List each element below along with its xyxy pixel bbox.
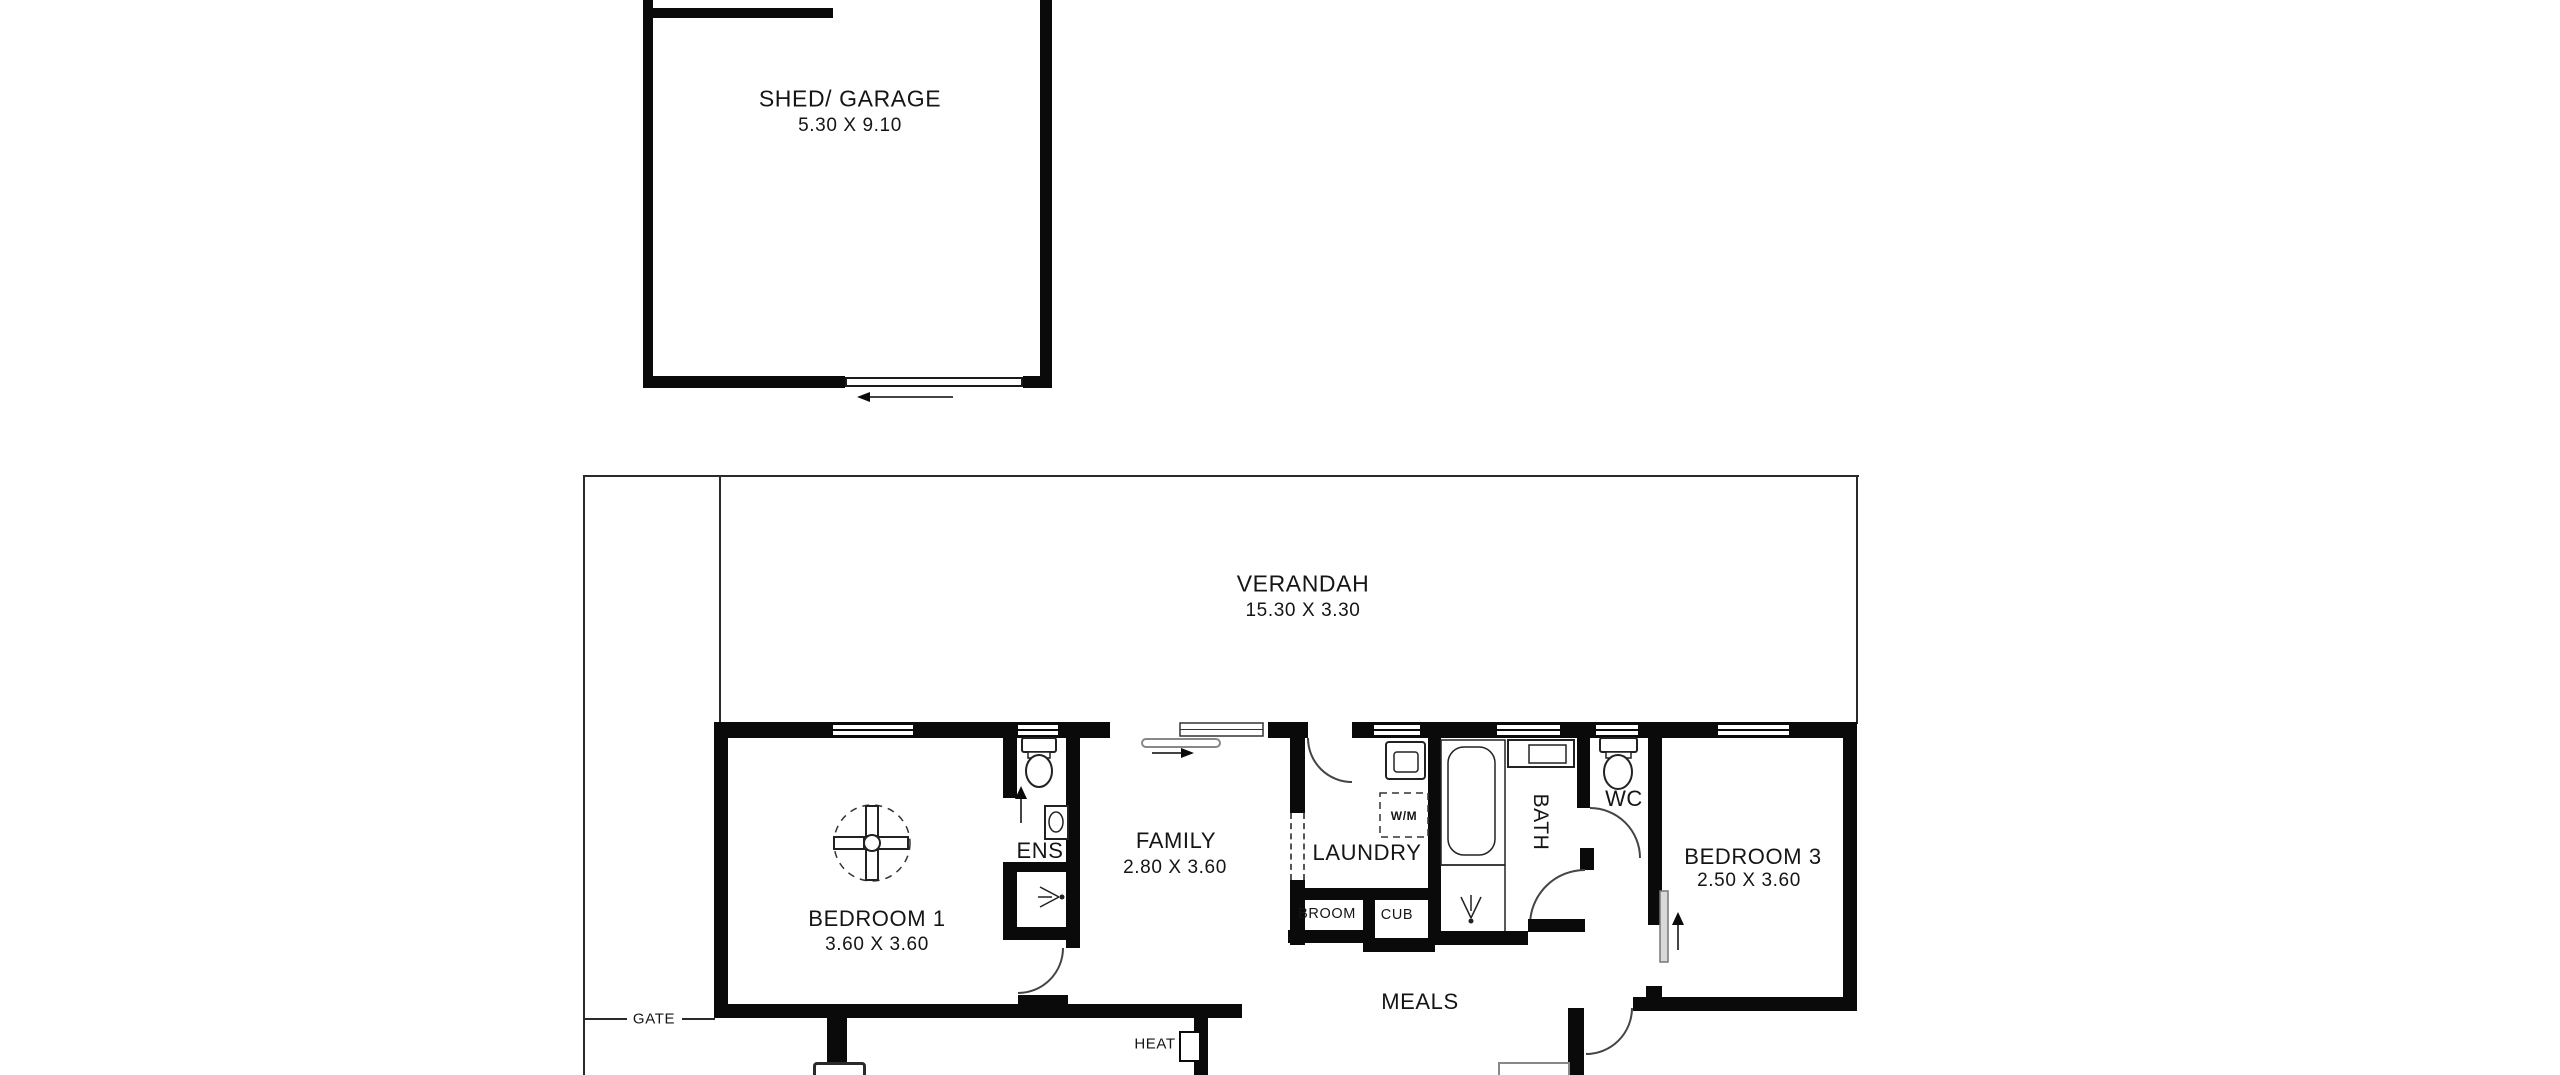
- door-arc-laundry: [1308, 738, 1352, 782]
- door-arc-wc: [1590, 808, 1640, 858]
- shower-ens-icon: [1038, 887, 1059, 907]
- sliding-door-panel-family: [1142, 739, 1220, 747]
- bedroom1-label: BEDROOM 1: [808, 906, 945, 932]
- meals-label: MEALS: [1381, 989, 1459, 1015]
- family-dimensions: 2.80 X 3.60: [1123, 857, 1227, 879]
- sliding-door-panel-bedroom3: [1660, 891, 1668, 962]
- toilet-bowl-wc-icon: [1604, 755, 1632, 789]
- door-leaf-bedroom1: [1018, 995, 1068, 1005]
- fixtures-layer: [0, 0, 2560, 1075]
- bedroom3-label: BEDROOM 3: [1684, 844, 1821, 870]
- door-arc-bath: [1530, 870, 1585, 925]
- shower-bath-icon: [1461, 895, 1481, 918]
- slide-arrow-family-head: [1181, 748, 1194, 758]
- floor-plan: SHED/ GARAGE 5.30 X 9.10 GATE VERANDAH 1…: [0, 0, 2560, 1075]
- washing-machine-label: W/M: [1391, 809, 1417, 823]
- bathtub-icon: [1448, 747, 1495, 855]
- laundry-trough-basin-icon: [1394, 752, 1418, 772]
- shed-door-arrow-head: [857, 392, 870, 402]
- ceiling-fan-blade-w-icon: [834, 837, 864, 849]
- wc-label: WC: [1605, 786, 1643, 812]
- ens-label: ENS: [1016, 838, 1063, 864]
- ceiling-fan-blade-s-icon: [866, 850, 878, 880]
- ceiling-fan-blade-n-icon: [866, 806, 878, 836]
- laundry-label: LAUNDRY: [1313, 840, 1422, 866]
- heat-label: HEAT: [1134, 1036, 1175, 1053]
- toilet-tank-ens-icon: [1022, 738, 1056, 752]
- bedroom1-dimensions: 3.60 X 3.60: [825, 934, 929, 956]
- bath-label: BATH: [1528, 794, 1552, 851]
- shower-bath-drain-icon: [1469, 919, 1474, 924]
- family-label: FAMILY: [1136, 828, 1216, 854]
- broom-label: BROOM: [1298, 906, 1356, 922]
- toilet-tank-wc-icon: [1600, 738, 1637, 752]
- door-arc-meals: [1586, 1008, 1632, 1054]
- bedroom3-dimensions: 2.50 X 3.60: [1697, 870, 1801, 892]
- cub-label: CUB: [1381, 907, 1413, 923]
- vanity-basin-ens-icon: [1049, 812, 1063, 832]
- vanity-basin-bath-icon: [1529, 745, 1566, 763]
- shower-ens-drain-icon: [1060, 895, 1065, 900]
- door-leaf-bath: [1528, 919, 1585, 932]
- ens-entry-arrow-head: [1015, 786, 1027, 799]
- ceiling-fan-hub-icon: [864, 835, 880, 851]
- toilet-bowl-ens-icon: [1026, 755, 1052, 787]
- ceiling-fan-blade-e-icon: [878, 837, 908, 849]
- door-arc-bedroom1: [1018, 948, 1063, 993]
- slide-arrow-bedroom3-head: [1672, 912, 1684, 925]
